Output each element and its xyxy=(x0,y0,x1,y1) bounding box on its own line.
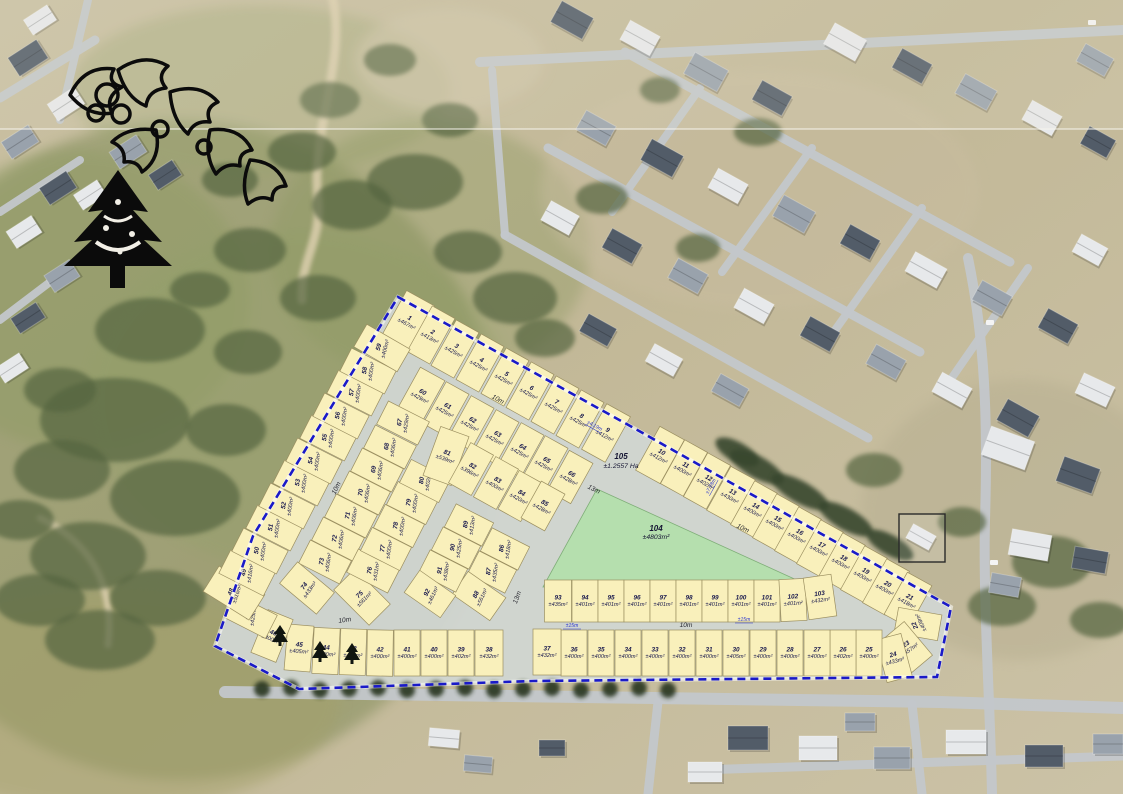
svg-text:±1.2557 Ha: ±1.2557 Ha xyxy=(603,463,638,470)
lot-34: 34±400m² xyxy=(615,630,641,676)
lot-94-area: ±401m² xyxy=(576,602,596,608)
lot-98-area: ±401m² xyxy=(680,602,700,608)
aerial-site-plan: 1±467m²2±413m²3±425m²4±425m²5±425m²6±425… xyxy=(0,0,1123,794)
lot-38-area: ±432m² xyxy=(480,654,500,660)
lot-40: 40±400m² xyxy=(421,630,447,676)
lot-96-area: ±401m² xyxy=(628,602,648,608)
lot-101: 101±401m² xyxy=(754,580,780,622)
site-plan-image: 1±467m²2±413m²3±425m²4±425m²5±425m²6±425… xyxy=(0,0,1123,794)
lot-101-area: ±401m² xyxy=(758,602,778,608)
lot-37-number: 37 xyxy=(543,646,551,653)
dimension-label: ±15m xyxy=(738,617,750,623)
lot-30-number: 30 xyxy=(732,647,740,654)
svg-text:±4803m²: ±4803m² xyxy=(643,534,671,541)
house-roof xyxy=(728,726,770,752)
shrub xyxy=(576,182,628,214)
lot-28: 28±400m² xyxy=(777,630,803,676)
lot-35-number: 35 xyxy=(597,647,605,654)
street-tree xyxy=(602,681,618,697)
lot-40-number: 40 xyxy=(429,647,438,654)
lot-31-number: 31 xyxy=(705,647,713,654)
house-roof xyxy=(874,747,912,771)
lot-31-area: ±400m² xyxy=(700,654,720,660)
lot-36: 36±400m² xyxy=(561,630,587,676)
car xyxy=(986,320,994,325)
lot-102-area: ±401m² xyxy=(784,600,804,607)
lot-101-number: 101 xyxy=(762,595,773,602)
lot-100: 100±401m² xyxy=(728,580,754,622)
road-width-label: 10m xyxy=(680,622,693,629)
lot-32-area: ±400m² xyxy=(673,654,693,660)
lot-39-number: 39 xyxy=(457,647,465,654)
lot-41-number: 41 xyxy=(402,647,411,654)
lot-26-number: 26 xyxy=(838,647,847,654)
shrub xyxy=(24,368,96,412)
lot-29-number: 29 xyxy=(758,647,767,654)
shrub xyxy=(170,272,230,308)
house-roof xyxy=(946,730,988,756)
shrub xyxy=(280,275,356,321)
street-tree xyxy=(254,681,270,697)
shrub xyxy=(214,330,282,374)
lot-103: 103±432m² xyxy=(803,574,837,619)
lot-102-number: 102 xyxy=(787,593,798,601)
lot-34-area: ±400m² xyxy=(619,654,639,660)
lot-96: 96±401m² xyxy=(624,580,650,622)
lot-98-number: 98 xyxy=(685,595,693,602)
lot-42-number: 42 xyxy=(375,646,384,653)
lot-42-area: ±400m² xyxy=(370,654,390,660)
lot-31: 31±400m² xyxy=(696,630,722,676)
lot-25-number: 25 xyxy=(864,647,873,654)
lot-35: 35±400m² xyxy=(588,630,614,676)
lot-28-area: ±400m² xyxy=(781,654,801,660)
lot-93-number: 93 xyxy=(554,595,562,602)
lot-37-area: ±432m² xyxy=(538,653,558,659)
house-roof xyxy=(799,736,839,762)
lot-98: 98±401m² xyxy=(676,580,702,622)
lot-94-number: 94 xyxy=(581,595,589,602)
street-tree xyxy=(660,682,676,698)
svg-text:104: 104 xyxy=(649,524,663,533)
street-tree xyxy=(573,682,589,698)
lot-99-area: ±401m² xyxy=(706,602,726,608)
svg-text:105: 105 xyxy=(614,452,628,461)
shrub xyxy=(95,298,205,362)
lot-35-area: ±400m² xyxy=(592,654,612,660)
lot-93-area: ±435m² xyxy=(549,602,569,608)
lot-102: 102±401m² xyxy=(779,578,807,621)
lot-33-area: ±400m² xyxy=(646,654,666,660)
house-roof xyxy=(1093,734,1123,756)
lot-38: 38±432m² xyxy=(475,630,503,676)
lot-29: 29±400m² xyxy=(750,630,776,676)
lot-95: 95±401m² xyxy=(598,580,624,622)
lot-26-area: ±402m² xyxy=(834,654,854,660)
lot-39-area: ±402m² xyxy=(452,654,472,660)
house-roof xyxy=(1025,745,1065,769)
lot-26: 26±402m² xyxy=(830,630,856,676)
house-roof xyxy=(539,740,567,758)
lot-27-area: ±400m² xyxy=(808,654,828,660)
lot-27-number: 27 xyxy=(812,647,821,654)
lot-95-area: ±401m² xyxy=(602,602,622,608)
shrub xyxy=(186,404,266,456)
shrub xyxy=(202,163,258,197)
lot-40-area: ±400m² xyxy=(425,654,445,660)
lot-30: 30±405m² xyxy=(723,630,749,676)
lot-41-area: ±400m² xyxy=(398,654,418,660)
lot-99: 99±401m² xyxy=(702,580,728,622)
shrub xyxy=(214,228,286,272)
lot-29-area: ±400m² xyxy=(754,654,774,660)
shrub xyxy=(473,272,557,324)
lot-97: 97±401m² xyxy=(650,580,676,622)
lot-94: 94±401m² xyxy=(572,580,598,622)
adjacent-parcel-outline xyxy=(899,514,945,562)
shrub xyxy=(268,132,336,172)
house-roof xyxy=(463,755,494,776)
lot-93: 93±435m² xyxy=(545,580,572,622)
lot-41: 41±400m² xyxy=(394,630,420,676)
lot-42: 42±400m² xyxy=(367,630,394,676)
shrub xyxy=(846,453,902,487)
lot-33: 33±400m² xyxy=(642,630,668,676)
lot-97-number: 97 xyxy=(659,595,667,602)
shrub xyxy=(515,319,575,357)
shrub xyxy=(14,440,110,500)
lot-100-area: ±401m² xyxy=(732,602,752,608)
dimension-label: ±15m xyxy=(566,623,578,629)
house-roof xyxy=(688,762,724,784)
lot-95-number: 95 xyxy=(607,595,615,602)
street-tree xyxy=(631,680,647,696)
lot-45-number: 45 xyxy=(294,641,303,649)
shrub xyxy=(434,231,502,273)
lot-36-area: ±400m² xyxy=(565,654,585,660)
lot-32: 32±400m² xyxy=(669,630,695,676)
lot-32-number: 32 xyxy=(678,647,686,654)
shrub xyxy=(312,180,392,230)
shrub xyxy=(676,234,720,262)
lot-39: 39±402m² xyxy=(448,630,474,676)
lot-100-number: 100 xyxy=(736,595,747,602)
lot-99-number: 99 xyxy=(711,595,719,602)
lot-25-area: ±400m² xyxy=(860,654,880,660)
lot-96-number: 96 xyxy=(633,595,641,602)
lot-38-number: 38 xyxy=(485,647,493,654)
lot-25: 25±400m² xyxy=(856,630,882,676)
lot-37: 37±432m² xyxy=(533,629,561,675)
lot-28-number: 28 xyxy=(785,647,794,654)
lot-34-number: 34 xyxy=(624,647,632,654)
shrub xyxy=(110,460,240,536)
lot-97-area: ±401m² xyxy=(654,602,674,608)
car xyxy=(990,560,998,565)
house-roof xyxy=(845,713,877,733)
lot-36-number: 36 xyxy=(570,647,578,654)
lot-33-number: 33 xyxy=(651,647,659,654)
lot-27: 27±400m² xyxy=(804,630,830,676)
lot-44: 44±400m² xyxy=(312,627,340,674)
lot-30-area: ±405m² xyxy=(727,654,747,660)
house-roof xyxy=(428,728,462,751)
